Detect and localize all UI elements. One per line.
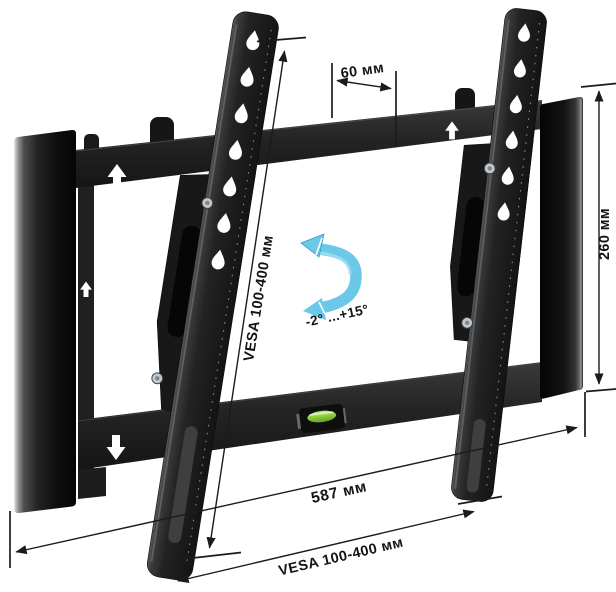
left-end-cap (14, 130, 76, 513)
dim-arrow-line (337, 81, 391, 89)
dim-label-260mm: 260 мм (597, 208, 613, 260)
right-end-cap (540, 97, 583, 399)
dim-label-vesa-bottom: VESA 100-400 мм (277, 535, 405, 580)
dim-tick (581, 84, 616, 88)
dim-label-587mm: 587 мм (309, 478, 368, 507)
wall-mount-drawing: -2° ...+15° 60 мм 260 мм 587 мм VESA 100… (0, 0, 616, 592)
dim-tick (586, 389, 616, 392)
wall-plate-corner-step (78, 467, 106, 499)
dim-label-60mm: 60 мм (340, 60, 385, 82)
right-tv-arm (424, 4, 547, 503)
dim-arrow-line (178, 512, 474, 582)
dimension-260mm: 260 мм (581, 84, 616, 392)
product-diagram: -2° ...+15° 60 мм 260 мм 587 мм VESA 100… (0, 0, 616, 592)
dimension-vesa-bottom: VESA 100-400 мм (178, 497, 502, 582)
